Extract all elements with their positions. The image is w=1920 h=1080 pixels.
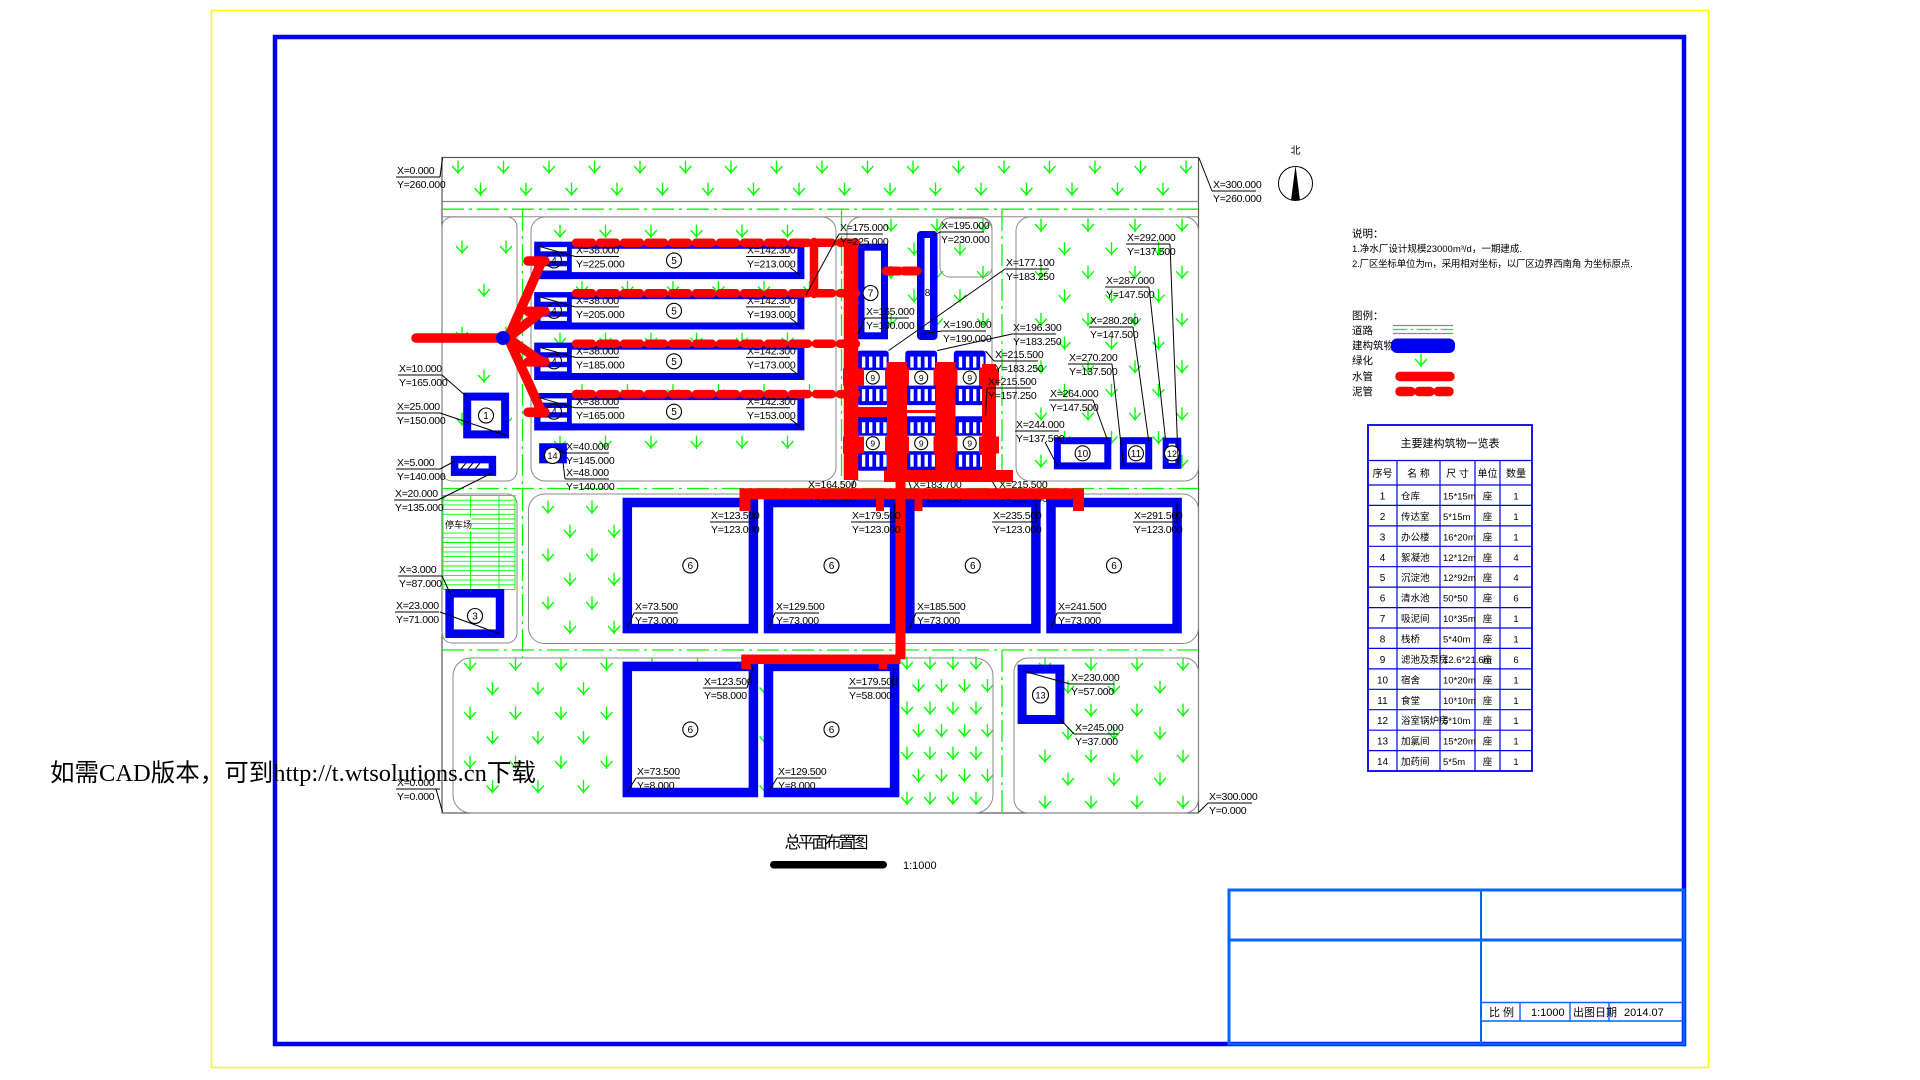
svg-text:15*20m: 15*20m bbox=[1443, 737, 1476, 748]
svg-text:10: 10 bbox=[1377, 675, 1389, 686]
svg-text:X=0.000: X=0.000 bbox=[397, 165, 435, 177]
svg-text:数量: 数量 bbox=[1506, 467, 1526, 480]
svg-text:Y=123.000: Y=123.000 bbox=[993, 524, 1042, 536]
svg-text:图例：: 图例： bbox=[1352, 309, 1384, 322]
svg-text:9: 9 bbox=[1380, 655, 1386, 666]
svg-text:Y=145.000: Y=145.000 bbox=[566, 455, 615, 467]
svg-text:Y=0.000: Y=0.000 bbox=[397, 791, 435, 803]
svg-text:Y=135.000: Y=135.000 bbox=[395, 502, 444, 514]
svg-text:3: 3 bbox=[1380, 532, 1386, 543]
svg-text:X=10.000: X=10.000 bbox=[399, 363, 442, 375]
svg-text:Y=183.250: Y=183.250 bbox=[1006, 271, 1055, 283]
svg-text:12: 12 bbox=[1167, 449, 1177, 459]
svg-text:Y=230.000: Y=230.000 bbox=[941, 234, 990, 246]
svg-text:6: 6 bbox=[1513, 594, 1518, 605]
svg-text:12*92m: 12*92m bbox=[1443, 573, 1476, 584]
svg-text:Y=73.000: Y=73.000 bbox=[635, 615, 678, 627]
svg-text:4: 4 bbox=[551, 306, 557, 317]
svg-text:座: 座 bbox=[1483, 531, 1493, 543]
svg-text:Y=58.000: Y=58.000 bbox=[704, 690, 747, 702]
svg-text:X=5.000: X=5.000 bbox=[397, 457, 435, 469]
svg-text:X=129.500: X=129.500 bbox=[776, 601, 825, 613]
svg-text:X=175.000: X=175.000 bbox=[840, 222, 889, 234]
svg-text:1.净水厂设计规模23000m³/d，一期建成.: 1.净水厂设计规模23000m³/d，一期建成. bbox=[1352, 243, 1522, 255]
svg-text:4: 4 bbox=[551, 357, 557, 368]
svg-text:7: 7 bbox=[868, 289, 874, 300]
svg-text:X=20.000: X=20.000 bbox=[395, 488, 438, 500]
svg-text:X=241.500: X=241.500 bbox=[1058, 601, 1107, 613]
svg-text:加氯间: 加氯间 bbox=[1401, 736, 1430, 748]
svg-text:X=195.000: X=195.000 bbox=[941, 220, 990, 232]
svg-text:6: 6 bbox=[970, 561, 976, 572]
svg-text:座: 座 bbox=[1483, 572, 1493, 584]
svg-text:Y=153.000: Y=153.000 bbox=[747, 410, 796, 422]
svg-text:1: 1 bbox=[1513, 614, 1518, 625]
svg-text:X=190.000: X=190.000 bbox=[943, 319, 992, 331]
svg-text:沉淀池: 沉淀池 bbox=[1401, 572, 1430, 584]
svg-text:Y=225.000: Y=225.000 bbox=[576, 259, 625, 271]
svg-text:Y=0.000: Y=0.000 bbox=[1209, 805, 1247, 817]
svg-text:4: 4 bbox=[1513, 573, 1518, 584]
svg-text:X=3.000: X=3.000 bbox=[399, 564, 437, 576]
svg-text:5*40m: 5*40m bbox=[1443, 635, 1471, 646]
svg-text:座: 座 bbox=[1483, 613, 1493, 625]
svg-text:X=215.500: X=215.500 bbox=[995, 349, 1044, 361]
svg-text:Y=123.000: Y=123.000 bbox=[1134, 524, 1183, 536]
svg-text:Y=8.000: Y=8.000 bbox=[637, 780, 675, 792]
svg-text:滤池及泵房: 滤池及泵房 bbox=[1401, 654, 1449, 666]
svg-text:Y=73.000: Y=73.000 bbox=[776, 615, 819, 627]
svg-text:北: 北 bbox=[1291, 145, 1301, 157]
svg-text:座: 座 bbox=[1483, 593, 1493, 605]
svg-text:X=291.500: X=291.500 bbox=[1134, 510, 1183, 522]
svg-text:Y=140.000: Y=140.000 bbox=[566, 481, 615, 493]
svg-text:水管: 水管 bbox=[1352, 370, 1373, 383]
svg-text:X=38.000: X=38.000 bbox=[576, 345, 619, 357]
svg-text:12: 12 bbox=[1377, 716, 1389, 727]
svg-text:4: 4 bbox=[1513, 553, 1518, 564]
svg-text:13: 13 bbox=[1377, 737, 1389, 748]
svg-text:9: 9 bbox=[870, 373, 875, 383]
svg-text:1: 1 bbox=[1513, 492, 1518, 503]
svg-text:9: 9 bbox=[967, 373, 972, 383]
svg-text:6: 6 bbox=[1513, 655, 1518, 666]
svg-text:办公楼: 办公楼 bbox=[1401, 531, 1430, 543]
svg-text:Y=225.000: Y=225.000 bbox=[840, 236, 889, 248]
svg-text:Y=205.000: Y=205.000 bbox=[576, 309, 625, 321]
svg-text:座: 座 bbox=[1483, 634, 1493, 646]
svg-text:Y=123.000: Y=123.000 bbox=[711, 524, 760, 536]
svg-text:8: 8 bbox=[1380, 635, 1386, 646]
svg-text:Y=58.000: Y=58.000 bbox=[849, 690, 892, 702]
svg-text:4: 4 bbox=[551, 407, 557, 418]
svg-text:1: 1 bbox=[1380, 492, 1386, 503]
svg-text:清水池: 清水池 bbox=[1401, 593, 1430, 605]
svg-text:食堂: 食堂 bbox=[1401, 695, 1420, 707]
svg-text:X=38.000: X=38.000 bbox=[576, 245, 619, 257]
svg-text:X=177.100: X=177.100 bbox=[1006, 257, 1055, 269]
svg-text:Y=147.500: Y=147.500 bbox=[1050, 402, 1099, 414]
svg-text:单位: 单位 bbox=[1478, 467, 1498, 480]
svg-text:X=23.000: X=23.000 bbox=[396, 600, 439, 612]
svg-text:X=38.000: X=38.000 bbox=[576, 295, 619, 307]
svg-text:Y=87.000: Y=87.000 bbox=[399, 578, 442, 590]
svg-text:5*5m: 5*5m bbox=[1443, 757, 1465, 768]
svg-text:X=300.000: X=300.000 bbox=[1213, 179, 1262, 191]
svg-text:X=123.500: X=123.500 bbox=[711, 510, 760, 522]
svg-text:宿舍: 宿舍 bbox=[1401, 674, 1421, 686]
svg-text:Y=157.250: Y=157.250 bbox=[988, 390, 1037, 402]
svg-text:6: 6 bbox=[1380, 594, 1386, 605]
svg-text:Y=137.500: Y=137.500 bbox=[1016, 433, 1065, 445]
svg-text:说明：: 说明： bbox=[1352, 227, 1384, 240]
svg-text:6: 6 bbox=[829, 725, 835, 736]
svg-text:11: 11 bbox=[1131, 449, 1142, 460]
svg-text:8: 8 bbox=[925, 288, 931, 299]
svg-text:5*15m: 5*15m bbox=[1443, 512, 1471, 523]
svg-text:序号: 序号 bbox=[1373, 467, 1393, 480]
svg-text:Y=137.500: Y=137.500 bbox=[1069, 366, 1118, 378]
svg-text:1: 1 bbox=[1513, 737, 1518, 748]
svg-text:13: 13 bbox=[1035, 691, 1045, 701]
svg-text:X=215.500: X=215.500 bbox=[988, 376, 1037, 388]
svg-text:5: 5 bbox=[671, 357, 677, 368]
svg-text:主要建构筑物一览表: 主要建构筑物一览表 bbox=[1401, 436, 1500, 450]
svg-text:Y=183.250: Y=183.250 bbox=[995, 363, 1044, 375]
svg-text:X=264.000: X=264.000 bbox=[1050, 388, 1099, 400]
svg-text:5: 5 bbox=[671, 306, 677, 317]
svg-text:吸泥间: 吸泥间 bbox=[1401, 613, 1430, 625]
svg-text:50*50: 50*50 bbox=[1443, 594, 1468, 605]
svg-text:1: 1 bbox=[1513, 696, 1518, 707]
svg-text:絮凝池: 絮凝池 bbox=[1401, 552, 1430, 564]
svg-text:X=123.500: X=123.500 bbox=[704, 676, 753, 688]
svg-text:X=185.500: X=185.500 bbox=[917, 601, 966, 613]
svg-text:停车场: 停车场 bbox=[445, 519, 472, 530]
svg-text:Y=190.000: Y=190.000 bbox=[866, 320, 915, 332]
svg-text:如需CAD版本，可到http://t.wtsolutions: 如需CAD版本，可到http://t.wtsolutions.cn下载 bbox=[50, 759, 536, 787]
svg-text:2: 2 bbox=[1380, 512, 1386, 523]
svg-text:尺 寸: 尺 寸 bbox=[1446, 467, 1469, 480]
svg-text:X=129.500: X=129.500 bbox=[778, 766, 827, 778]
svg-text:1: 1 bbox=[1513, 512, 1518, 523]
svg-text:10: 10 bbox=[1077, 449, 1089, 460]
svg-text:Y=8.000: Y=8.000 bbox=[778, 780, 816, 792]
svg-text:16*20m: 16*20m bbox=[1443, 532, 1476, 543]
svg-text:1: 1 bbox=[1513, 675, 1518, 686]
svg-text:Y=173.000: Y=173.000 bbox=[747, 359, 796, 371]
svg-text:5: 5 bbox=[671, 256, 677, 267]
svg-text:X=142.300: X=142.300 bbox=[747, 245, 796, 257]
svg-text:X=73.500: X=73.500 bbox=[637, 766, 680, 778]
svg-text:X=300.000: X=300.000 bbox=[1209, 791, 1258, 803]
svg-text:栈桥: 栈桥 bbox=[1401, 634, 1421, 646]
svg-text:10*10m: 10*10m bbox=[1443, 696, 1476, 707]
svg-text:Y=147.500: Y=147.500 bbox=[1106, 289, 1155, 301]
svg-text:X=165.000: X=165.000 bbox=[866, 306, 915, 318]
svg-text:14: 14 bbox=[1377, 757, 1389, 768]
svg-text:Y=123.000: Y=123.000 bbox=[852, 524, 901, 536]
svg-text:X=280.200: X=280.200 bbox=[1090, 315, 1139, 327]
svg-text:传达室: 传达室 bbox=[1401, 511, 1430, 523]
svg-text:建构筑物: 建构筑物 bbox=[1352, 339, 1394, 352]
svg-text:15*15m: 15*15m bbox=[1443, 492, 1476, 503]
svg-text:Y=150.000: Y=150.000 bbox=[397, 415, 446, 427]
svg-text:X=235.500: X=235.500 bbox=[993, 510, 1042, 522]
svg-text:座: 座 bbox=[1483, 715, 1493, 727]
svg-text:2.厂区坐标单位为m，采用相对坐标，以厂区边界西南角 为坐: 2.厂区坐标单位为m，采用相对坐标，以厂区边界西南角 为坐标原点. bbox=[1352, 258, 1633, 270]
svg-text:座: 座 bbox=[1483, 491, 1493, 503]
svg-text:Y=37.000: Y=37.000 bbox=[1075, 736, 1118, 748]
svg-text:1: 1 bbox=[1513, 635, 1518, 646]
svg-text:X=25.000: X=25.000 bbox=[397, 401, 440, 413]
svg-text:1:1000: 1:1000 bbox=[903, 860, 937, 872]
svg-text:Y=73.000: Y=73.000 bbox=[1058, 615, 1101, 627]
svg-text:Y=190.000: Y=190.000 bbox=[943, 333, 992, 345]
svg-text:6: 6 bbox=[829, 561, 835, 572]
svg-text:X=179.500: X=179.500 bbox=[852, 510, 901, 522]
svg-text:出图日期: 出图日期 bbox=[1573, 1005, 1617, 1019]
svg-text:Y=183.250: Y=183.250 bbox=[1013, 336, 1062, 348]
svg-text:9: 9 bbox=[870, 439, 875, 449]
svg-text:Y=71.000: Y=71.000 bbox=[396, 614, 439, 626]
svg-text:绿化: 绿化 bbox=[1352, 354, 1374, 367]
svg-text:加药间: 加药间 bbox=[1401, 756, 1430, 768]
svg-text:X=40.000: X=40.000 bbox=[566, 441, 609, 453]
svg-text:Y=73.000: Y=73.000 bbox=[917, 615, 960, 627]
svg-text:浴室锅炉房: 浴室锅炉房 bbox=[1401, 715, 1449, 727]
svg-text:X=292.000: X=292.000 bbox=[1127, 232, 1176, 244]
svg-text:座: 座 bbox=[1483, 695, 1493, 707]
svg-text:6: 6 bbox=[688, 725, 694, 736]
svg-text:1: 1 bbox=[1513, 532, 1518, 543]
svg-text:4: 4 bbox=[551, 256, 557, 267]
svg-text:X=48.000: X=48.000 bbox=[566, 467, 609, 479]
svg-text:X=270.200: X=270.200 bbox=[1069, 352, 1118, 364]
svg-text:7: 7 bbox=[1380, 614, 1386, 625]
svg-text:仓库: 仓库 bbox=[1401, 491, 1421, 503]
svg-text:5: 5 bbox=[671, 407, 677, 418]
svg-text:X=142.300: X=142.300 bbox=[747, 345, 796, 357]
svg-text:座: 座 bbox=[1483, 654, 1493, 666]
svg-text:座: 座 bbox=[1483, 756, 1493, 768]
svg-text:2014.07: 2014.07 bbox=[1624, 1007, 1664, 1019]
svg-text:10*20m: 10*20m bbox=[1443, 675, 1476, 686]
svg-text:Y=57.000: Y=57.000 bbox=[1071, 686, 1114, 698]
svg-text:Y=137.500: Y=137.500 bbox=[1127, 246, 1176, 258]
svg-text:泥管: 泥管 bbox=[1352, 385, 1373, 398]
svg-text:9: 9 bbox=[919, 439, 924, 449]
svg-text:X=245.000: X=245.000 bbox=[1075, 722, 1124, 734]
svg-text:比 例: 比 例 bbox=[1489, 1005, 1514, 1019]
svg-text:X=38.000: X=38.000 bbox=[576, 396, 619, 408]
svg-text:座: 座 bbox=[1483, 511, 1493, 523]
svg-text:Y=185.000: Y=185.000 bbox=[576, 359, 625, 371]
svg-text:1: 1 bbox=[483, 411, 489, 422]
svg-text:11: 11 bbox=[1377, 696, 1388, 707]
svg-text:14: 14 bbox=[547, 451, 557, 461]
svg-text:座: 座 bbox=[1483, 674, 1493, 686]
svg-text:X=244.000: X=244.000 bbox=[1016, 419, 1065, 431]
svg-text:4: 4 bbox=[1380, 553, 1386, 564]
svg-text:12*12m: 12*12m bbox=[1443, 553, 1476, 564]
svg-text:6: 6 bbox=[1111, 561, 1117, 572]
svg-text:6: 6 bbox=[688, 561, 694, 572]
svg-text:X=287.000: X=287.000 bbox=[1106, 275, 1155, 287]
svg-text:Y=260.000: Y=260.000 bbox=[397, 179, 446, 191]
svg-text:3: 3 bbox=[472, 612, 478, 623]
svg-text:Y=193.000: Y=193.000 bbox=[747, 309, 796, 321]
svg-text:座: 座 bbox=[1483, 736, 1493, 748]
svg-text:10*35m: 10*35m bbox=[1443, 614, 1476, 625]
svg-text:Y=147.500: Y=147.500 bbox=[1090, 329, 1139, 341]
svg-text:5*10m: 5*10m bbox=[1443, 716, 1471, 727]
svg-text:1: 1 bbox=[1513, 716, 1518, 727]
svg-text:名 称: 名 称 bbox=[1407, 467, 1430, 480]
svg-text:Y=140.000: Y=140.000 bbox=[397, 471, 446, 483]
svg-text:9: 9 bbox=[919, 373, 924, 383]
svg-text:X=179.500: X=179.500 bbox=[849, 676, 898, 688]
svg-text:1:1000: 1:1000 bbox=[1531, 1007, 1565, 1019]
svg-text:座: 座 bbox=[1483, 552, 1493, 564]
svg-text:X=73.500: X=73.500 bbox=[635, 601, 678, 613]
svg-text:Y=260.000: Y=260.000 bbox=[1213, 193, 1262, 205]
svg-text:道路: 道路 bbox=[1352, 324, 1374, 337]
svg-text:Y=165.000: Y=165.000 bbox=[399, 377, 448, 389]
svg-text:X=230.000: X=230.000 bbox=[1071, 672, 1120, 684]
svg-text:5: 5 bbox=[1380, 573, 1386, 584]
svg-text:X=142.300: X=142.300 bbox=[747, 295, 796, 307]
svg-text:9: 9 bbox=[967, 439, 972, 449]
svg-text:1: 1 bbox=[1513, 757, 1518, 768]
svg-text:X=142.300: X=142.300 bbox=[747, 396, 796, 408]
svg-text:总平面布置图: 总平面布置图 bbox=[785, 833, 869, 852]
svg-text:Y=213.000: Y=213.000 bbox=[747, 259, 796, 271]
svg-text:X=196.300: X=196.300 bbox=[1013, 322, 1062, 334]
svg-text:Y=165.000: Y=165.000 bbox=[576, 410, 625, 422]
